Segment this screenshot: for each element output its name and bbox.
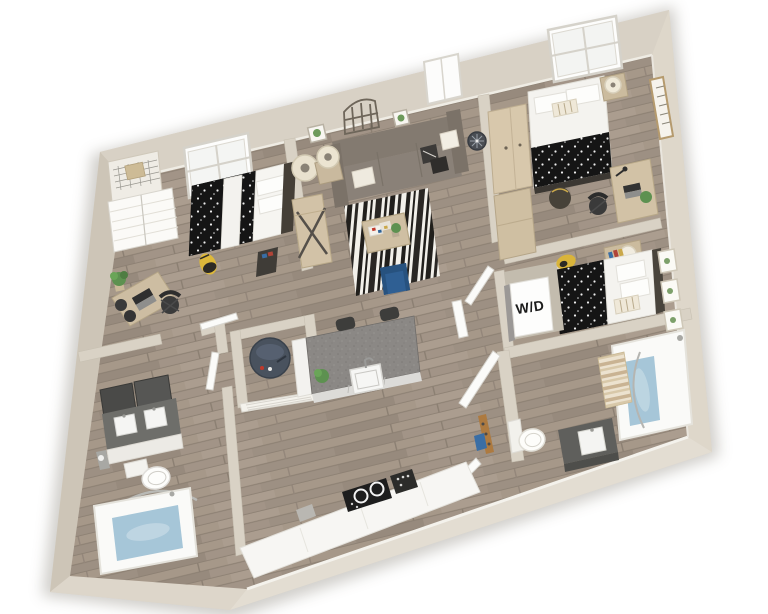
bed1-folded-blanket	[221, 175, 242, 249]
accent-chair	[380, 263, 410, 295]
framed-plant-right	[393, 110, 410, 127]
vanity1-sink-2	[144, 407, 167, 429]
wall-clock	[468, 132, 486, 150]
floor-lamp	[292, 155, 318, 181]
living-window	[424, 54, 462, 104]
office-chair-bed2	[589, 194, 607, 215]
backpack-bed2	[549, 187, 571, 209]
table-lamp	[317, 146, 339, 168]
framed-plant-left	[308, 124, 327, 142]
water-heater	[250, 338, 290, 378]
laundry-closet: W/D	[504, 262, 564, 342]
bed2-nightstand	[600, 73, 628, 101]
bed3-duvet	[556, 260, 608, 334]
desk-stool-2	[124, 310, 136, 322]
floor-plan-svg: W/D	[0, 0, 768, 614]
desk-stool-1	[115, 299, 127, 311]
vanity1-sink-1	[114, 414, 137, 436]
sofa-pillow-white-2	[440, 130, 459, 150]
floor-plan-image: W/D	[0, 0, 768, 614]
shower-head	[677, 335, 683, 341]
tub-faucet	[170, 492, 175, 497]
desk-bed2	[610, 159, 658, 223]
desk2-plant	[640, 191, 652, 203]
